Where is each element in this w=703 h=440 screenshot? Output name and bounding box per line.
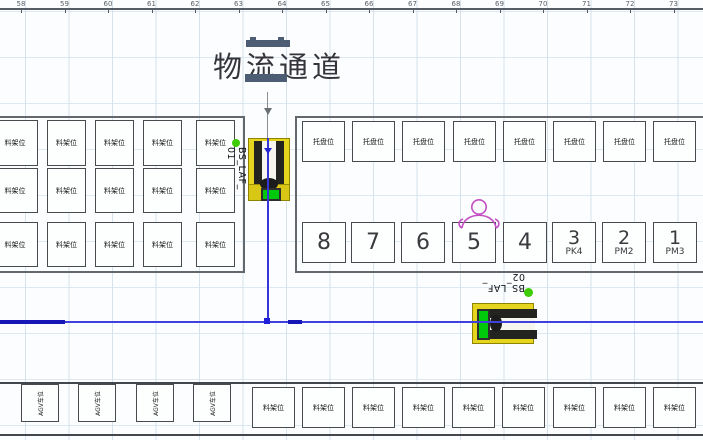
ruler-tick: [152, 10, 153, 13]
slot-label: 料架位: [5, 240, 26, 250]
bottom-lane-bottom-line: [0, 434, 703, 436]
machine-2-name: BS_LAF_: [469, 282, 525, 293]
slot-label: 托盘位: [664, 137, 685, 147]
station-number: 4: [518, 231, 532, 254]
machine-2-status-dot: [524, 288, 533, 297]
route-junction-node: [264, 318, 270, 324]
ruler-tick: [195, 10, 196, 13]
agv-parking-slot[interactable]: AGV车位: [193, 384, 231, 422]
ruler-number: 64: [278, 0, 287, 8]
rack-slot[interactable]: 料架位: [47, 168, 86, 213]
pallet-slot[interactable]: 托盘位: [302, 121, 345, 162]
station-slot-6[interactable]: 6: [401, 222, 445, 263]
slot-label: 托盘位: [413, 137, 434, 147]
slot-label: 料架位: [614, 403, 635, 413]
slot-label: 料架位: [564, 403, 585, 413]
station-slot-2[interactable]: 2PM2: [602, 222, 646, 263]
station-slot-8[interactable]: 8: [302, 222, 346, 263]
agv-route-vertical: [267, 138, 269, 322]
ruler-tick: [21, 10, 22, 13]
rack-slot[interactable]: 料架位: [553, 387, 596, 428]
station-number: 6: [416, 231, 430, 254]
layout-canvas: 58596061626364656667686970717273 物流通道 料架…: [0, 0, 703, 440]
agv-route-segment-mid: [288, 320, 302, 324]
slot-label: 料架位: [152, 186, 173, 196]
ruler-tick: [369, 10, 370, 13]
station-sublabel: PM3: [666, 248, 685, 257]
rack-slot[interactable]: 料架位: [95, 120, 134, 166]
slot-label: 料架位: [664, 403, 685, 413]
station-sublabel: PK4: [565, 248, 582, 257]
slot-label: 托盘位: [614, 137, 635, 147]
machine-1-status-dot: [232, 139, 240, 147]
ruler-number: 68: [452, 0, 461, 8]
ruler-number: 58: [17, 0, 26, 8]
slot-label: 料架位: [104, 138, 125, 148]
bottom-lane-top-line: [0, 382, 703, 384]
rack-slot[interactable]: 料架位: [402, 387, 445, 428]
ruler-number: 62: [191, 0, 200, 8]
selection-bar-bottom: [245, 74, 287, 82]
slot-label: 料架位: [152, 138, 173, 148]
slot-label: 料架位: [513, 403, 534, 413]
pallet-slot[interactable]: 托盘位: [603, 121, 646, 162]
machine-1-name: BS_LAF_: [236, 147, 247, 190]
station-slot-1[interactable]: 1PM3: [653, 222, 697, 263]
ruler-tick: [587, 10, 588, 13]
ruler-tick: [674, 10, 675, 13]
ruler-number: 67: [408, 0, 417, 8]
ruler-tick: [413, 10, 414, 13]
slot-label: 料架位: [56, 186, 77, 196]
agv-parking-slot[interactable]: AGV车位: [21, 384, 59, 422]
machine-1-fork-right: [276, 141, 284, 187]
ruler-number: 65: [321, 0, 330, 8]
rack-slot[interactable]: 料架位: [47, 120, 86, 166]
ruler-number: 63: [234, 0, 243, 8]
ruler-tick: [108, 10, 109, 13]
machine-1-number: 01: [225, 147, 236, 190]
slot-label: 料架位: [363, 403, 384, 413]
slot-label: 料架位: [5, 186, 26, 196]
rack-slot[interactable]: 料架位: [452, 387, 495, 428]
machine-2-label: BS_LAF_ 02: [469, 271, 525, 293]
rack-slot[interactable]: 料架位: [252, 387, 295, 428]
rack-slot[interactable]: 料架位: [0, 168, 38, 213]
slot-label: 料架位: [104, 186, 125, 196]
slot-label: 料架位: [205, 186, 226, 196]
machine-2-clamp: [490, 315, 502, 332]
ruler-tick: [456, 10, 457, 13]
ruler-number: 70: [539, 0, 548, 8]
slot-label: 料架位: [5, 138, 26, 148]
ruler-number: 59: [60, 0, 69, 8]
slot-label: 料架位: [205, 138, 226, 148]
slot-label: 托盘位: [514, 137, 535, 147]
operator-symbol-icon: [456, 196, 500, 230]
slot-label: AGV车位: [150, 391, 159, 416]
ruler-number: 71: [582, 0, 591, 8]
slot-label: AGV车位: [92, 391, 101, 416]
rack-slot[interactable]: 料架位: [352, 387, 395, 428]
pallet-slot[interactable]: 托盘位: [352, 121, 395, 162]
station-sublabel: PM2: [615, 248, 634, 257]
slot-label: 料架位: [463, 403, 484, 413]
machine-1-label: BS_LAF_ 01: [225, 147, 247, 190]
slot-label: 料架位: [413, 403, 434, 413]
rack-slot[interactable]: 料架位: [653, 387, 696, 428]
arrow-down-icon: [264, 108, 272, 115]
slot-label: 料架位: [205, 240, 226, 250]
rack-slot[interactable]: 料架位: [0, 120, 38, 166]
rack-slot[interactable]: 料架位: [603, 387, 646, 428]
ruler-number: 61: [147, 0, 156, 8]
slot-label: AGV车位: [35, 391, 44, 416]
ruler-number: 66: [365, 0, 374, 8]
pallet-slot[interactable]: 托盘位: [653, 121, 696, 162]
rack-slot[interactable]: 料架位: [95, 222, 134, 267]
pallet-slot[interactable]: 托盘位: [453, 121, 496, 162]
ruler-number: 69: [495, 0, 504, 8]
agv-parking-slot[interactable]: AGV车位: [78, 384, 116, 422]
rack-slot[interactable]: 料架位: [502, 387, 545, 428]
selection-bar-top: [246, 40, 290, 47]
rack-slot[interactable]: 料架位: [196, 222, 235, 267]
agv-parking-slot[interactable]: AGV车位: [136, 384, 174, 422]
station-number: 8: [317, 231, 331, 254]
rack-slot[interactable]: 料架位: [0, 222, 38, 267]
machine-2-number: 02: [469, 271, 525, 282]
station-number: 3: [568, 229, 580, 248]
slot-label: 料架位: [263, 403, 284, 413]
ruler-tick: [500, 10, 501, 13]
station-number: 1: [669, 229, 681, 248]
slot-label: 料架位: [104, 240, 125, 250]
rack-slot[interactable]: 料架位: [143, 168, 182, 213]
dimension-line: [267, 92, 268, 138]
stacker-machine-2[interactable]: [472, 303, 534, 344]
slot-label: 托盘位: [564, 137, 585, 147]
machine-2-screen: [477, 309, 490, 340]
slot-label: 料架位: [313, 403, 334, 413]
slot-label: 料架位: [56, 138, 77, 148]
slot-label: 托盘位: [464, 137, 485, 147]
machine-1-screen: [261, 188, 281, 201]
agv-route-segment-left: [0, 320, 65, 324]
slot-label: 料架位: [56, 240, 77, 250]
ruler-tick: [630, 10, 631, 13]
rack-slot[interactable]: 料架位: [302, 387, 345, 428]
station-number: 5: [467, 231, 481, 254]
station-slot-3[interactable]: 3PK4: [552, 222, 596, 263]
pallet-slot[interactable]: 托盘位: [503, 121, 546, 162]
rack-slot[interactable]: 料架位: [47, 222, 86, 267]
slot-label: 料架位: [152, 240, 173, 250]
station-slot-4[interactable]: 4: [503, 222, 547, 263]
ruler-tick: [326, 10, 327, 13]
pallet-slot[interactable]: 托盘位: [553, 121, 596, 162]
station-number: 2: [618, 229, 630, 248]
rack-slot[interactable]: 料架位: [143, 120, 182, 166]
rack-slot[interactable]: 料架位: [95, 168, 134, 213]
station-number: 7: [366, 231, 380, 254]
ruler-number: 73: [669, 0, 678, 8]
slot-label: AGV车位: [207, 391, 216, 416]
ruler-line: [0, 8, 703, 10]
station-slot-7[interactable]: 7: [351, 222, 395, 263]
ruler-tick: [543, 10, 544, 13]
ruler-tick: [65, 10, 66, 13]
ruler-number: 60: [104, 0, 113, 8]
rack-slot[interactable]: 料架位: [143, 222, 182, 267]
pallet-slot[interactable]: 托盘位: [402, 121, 445, 162]
ruler-tick: [239, 10, 240, 13]
ruler-number: 72: [626, 0, 635, 8]
slot-label: 托盘位: [363, 137, 384, 147]
agv-route-horizontal: [0, 321, 703, 323]
slot-label: 托盘位: [313, 137, 334, 147]
ruler-tick: [282, 10, 283, 13]
route-arrow-icon: [264, 148, 272, 154]
